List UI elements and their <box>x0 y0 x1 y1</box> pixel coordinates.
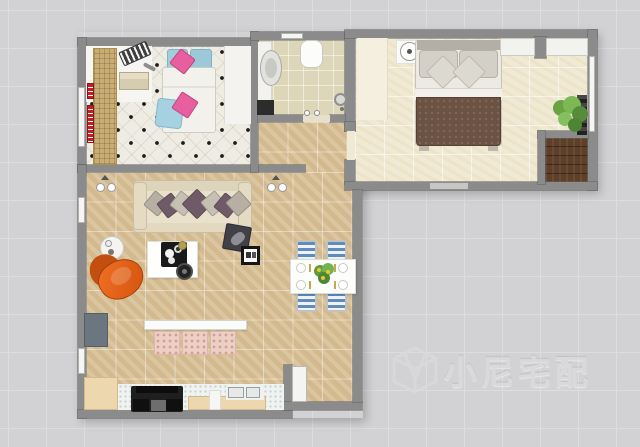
entry-door[interactable] <box>292 366 307 402</box>
wall <box>258 115 303 122</box>
tray-item <box>252 252 256 258</box>
lamp-dot-icon <box>267 183 276 192</box>
curtain-drawer[interactable] <box>154 331 180 355</box>
wicker-shelf[interactable] <box>93 48 117 165</box>
door-knob <box>314 110 320 116</box>
dining-chair[interactable] <box>326 291 347 312</box>
window <box>78 87 85 147</box>
red-wall-rack[interactable] <box>87 83 94 99</box>
bathroom-door-opening <box>303 115 330 122</box>
stove-control-panel <box>136 386 178 393</box>
red-wall-rack[interactable] <box>87 105 94 143</box>
lamp-arrow-icon <box>272 175 280 180</box>
closet-shelf[interactable] <box>546 38 588 56</box>
lamp-dot-icon <box>278 183 287 192</box>
window <box>78 348 85 374</box>
area-rug[interactable] <box>357 38 388 120</box>
stove-foot <box>166 399 182 411</box>
leaf <box>568 118 582 132</box>
brass-bowl <box>178 241 187 250</box>
dining-chair[interactable] <box>296 291 317 312</box>
wall-column <box>535 37 546 58</box>
wall <box>78 38 258 46</box>
fan-hub-icon <box>407 49 412 54</box>
curtain-drawer[interactable] <box>182 331 208 355</box>
table-plant[interactable] <box>313 263 339 289</box>
wall <box>345 160 355 184</box>
wall <box>78 410 292 418</box>
frame-tray-table[interactable] <box>241 246 260 265</box>
media-console[interactable] <box>144 320 247 330</box>
wall <box>330 115 345 122</box>
window <box>281 33 303 39</box>
lamp-dot-icon <box>107 183 116 192</box>
cup <box>168 257 175 264</box>
closet-shelf[interactable] <box>500 38 535 56</box>
cube-logo-icon <box>392 346 438 394</box>
plate <box>338 263 348 273</box>
brown-blanket[interactable] <box>416 97 501 146</box>
flower <box>321 276 325 280</box>
wardrobe[interactable] <box>224 46 251 124</box>
window <box>589 56 595 132</box>
washbasin-bowl <box>265 58 277 78</box>
lamp-arrow-icon <box>101 175 109 180</box>
plate <box>296 263 306 273</box>
orange-armchair[interactable] <box>90 252 142 300</box>
potted-plant[interactable] <box>553 96 589 138</box>
wall <box>345 182 597 190</box>
plate <box>338 280 348 290</box>
bedroom-door-opening <box>347 131 355 160</box>
table-decor <box>229 230 247 247</box>
design-canvas: { "canvas": { "type": "home-design-floor… <box>0 0 640 447</box>
wall-lamp[interactable] <box>96 175 114 191</box>
stove-foot <box>133 399 149 411</box>
plate <box>296 280 306 290</box>
wall-lamp[interactable] <box>267 175 285 191</box>
cutlery <box>309 264 311 272</box>
watermark-text: 小尼宅配 <box>444 346 592 394</box>
flower <box>317 268 321 272</box>
wall <box>538 131 545 184</box>
bath-mat[interactable] <box>257 100 274 115</box>
wall <box>78 165 305 172</box>
flower <box>326 270 330 274</box>
wall <box>353 190 362 402</box>
watermark: 小尼宅配 <box>392 346 592 394</box>
headboard <box>417 40 500 50</box>
dining-chair[interactable] <box>326 240 347 261</box>
dining-chair[interactable] <box>296 240 317 261</box>
wall <box>345 122 355 131</box>
window <box>430 183 468 189</box>
wall <box>345 32 355 131</box>
lamp-dot-icon <box>96 183 105 192</box>
speaker-cone-icon <box>182 269 187 274</box>
bed-leg <box>488 146 498 151</box>
wall <box>345 30 597 38</box>
wall <box>284 402 362 410</box>
appliance[interactable] <box>209 390 221 410</box>
table-item <box>105 240 112 247</box>
drain <box>340 107 344 111</box>
tray-item <box>246 252 251 258</box>
window <box>78 197 85 223</box>
bed-leg <box>419 146 429 151</box>
bench[interactable] <box>119 72 149 90</box>
balcony-wood-deck <box>545 138 588 183</box>
duvet-seam <box>163 86 215 88</box>
curtain-drawer[interactable] <box>210 331 236 355</box>
cutlery <box>309 281 311 289</box>
wood-cabinet[interactable] <box>84 377 118 410</box>
shower-head[interactable] <box>334 93 347 106</box>
door-knob <box>304 110 310 116</box>
bathtub[interactable] <box>300 40 323 68</box>
tv-panel[interactable] <box>84 313 108 347</box>
sink-basin[interactable] <box>228 387 244 398</box>
sink-basin[interactable] <box>246 387 260 398</box>
